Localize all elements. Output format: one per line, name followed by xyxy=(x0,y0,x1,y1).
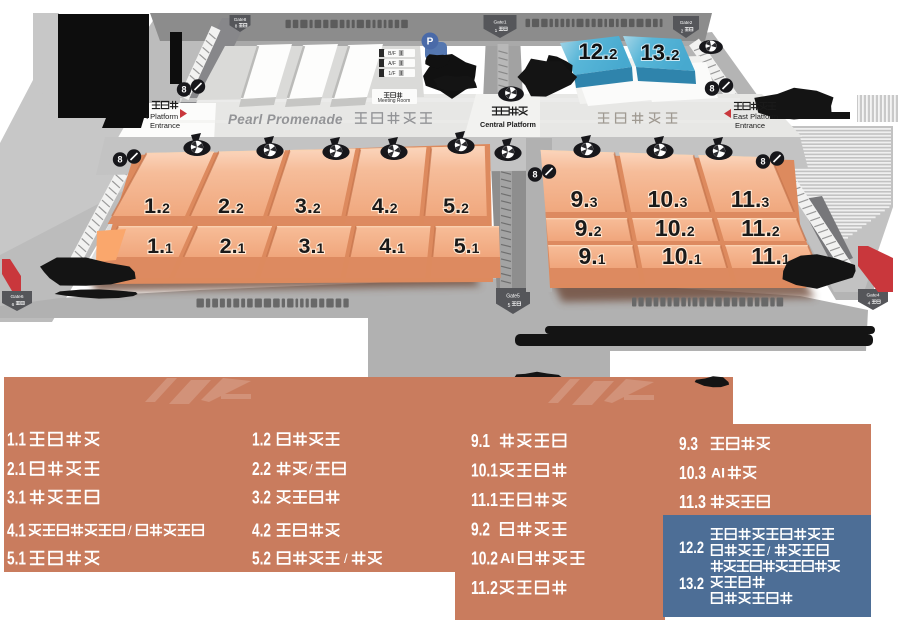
svg-text:Gate2: Gate2 xyxy=(680,20,693,25)
svg-text:11.2: 11.2 xyxy=(471,578,498,598)
svg-text:Entrance: Entrance xyxy=(150,121,180,130)
svg-text:4.2: 4.2 xyxy=(252,521,271,541)
svg-text:1.2: 1.2 xyxy=(252,430,271,450)
svg-text:8: 8 xyxy=(117,155,122,165)
svg-text:/: / xyxy=(344,551,348,566)
svg-text:/: / xyxy=(128,523,132,538)
svg-text:Gate1: Gate1 xyxy=(493,19,506,25)
svg-text:6: 6 xyxy=(12,302,15,308)
svg-text:12.2: 12.2 xyxy=(679,538,704,557)
svg-text:Pearl Promenade: Pearl Promenade xyxy=(228,112,343,127)
svg-text:9.3: 9.3 xyxy=(679,434,698,454)
svg-text:10.2: 10.2 xyxy=(471,549,498,569)
svg-text:4: 4 xyxy=(868,301,871,307)
svg-text:5.1: 5.1 xyxy=(7,549,26,569)
svg-text:11.3: 11.3 xyxy=(679,492,706,512)
svg-text:2.2: 2.2 xyxy=(252,459,271,479)
svg-text:3.2: 3.2 xyxy=(252,488,271,508)
svg-text:10.1: 10.1 xyxy=(471,461,498,481)
svg-text:Gate6: Gate6 xyxy=(10,294,23,300)
svg-text:8: 8 xyxy=(532,170,537,180)
svg-text:2: 2 xyxy=(681,28,684,33)
svg-text:B/F: B/F xyxy=(388,51,396,57)
svg-text:East Platform: East Platform xyxy=(733,112,778,121)
svg-text:5: 5 xyxy=(508,303,511,309)
svg-text:P: P xyxy=(427,37,434,48)
svg-text:Gate8: Gate8 xyxy=(234,17,247,22)
svg-text:11.1: 11.1 xyxy=(471,490,498,510)
svg-text:8: 8 xyxy=(235,24,238,29)
svg-text:3.1: 3.1 xyxy=(7,488,26,508)
svg-text:/: / xyxy=(309,462,313,477)
svg-text:Gate4: Gate4 xyxy=(866,293,879,299)
svg-text:2.1: 2.1 xyxy=(7,459,26,479)
svg-text:9.2: 9.2 xyxy=(471,520,490,540)
svg-text:AI: AI xyxy=(500,551,515,567)
svg-text:A/F: A/F xyxy=(388,61,396,67)
svg-text:AI: AI xyxy=(711,465,725,481)
svg-text:Meeting Room: Meeting Room xyxy=(378,98,411,104)
svg-text:9.1: 9.1 xyxy=(471,431,490,451)
svg-text:Gate5: Gate5 xyxy=(506,293,520,299)
svg-text:8: 8 xyxy=(709,84,714,94)
svg-text:13.2: 13.2 xyxy=(679,574,704,593)
svg-text:1.1: 1.1 xyxy=(7,430,26,450)
svg-text:4.1: 4.1 xyxy=(7,521,26,541)
svg-text:Central Platform: Central Platform xyxy=(480,120,536,129)
svg-text:1: 1 xyxy=(495,28,498,34)
svg-text:10.3: 10.3 xyxy=(679,463,706,483)
svg-text:8: 8 xyxy=(760,157,765,167)
svg-text:8: 8 xyxy=(181,85,186,95)
svg-text:1/F: 1/F xyxy=(388,71,395,77)
svg-text:Entrance: Entrance xyxy=(735,121,765,130)
svg-text:t Platform: t Platform xyxy=(146,112,178,121)
svg-text:5.2: 5.2 xyxy=(252,549,271,569)
